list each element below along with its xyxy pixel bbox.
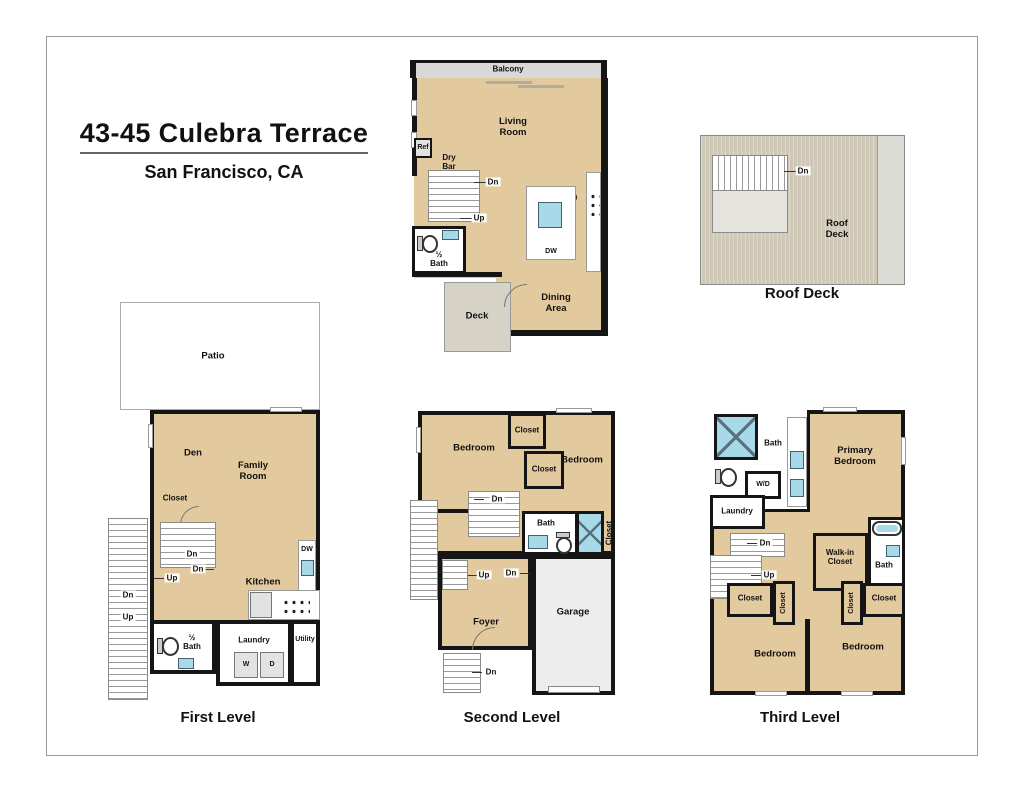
stairs-dn-label: Dn <box>796 166 811 175</box>
room-label-bath: Bath <box>537 518 555 527</box>
page-subtitle: San Francisco, CA <box>56 162 392 183</box>
stairs <box>160 522 216 568</box>
stairs-up-label: Up <box>472 213 487 222</box>
room-utility <box>290 620 320 686</box>
window <box>755 691 787 696</box>
sink <box>301 560 314 576</box>
direction-arrow <box>460 218 472 219</box>
stairs-dn-label: Dn <box>191 564 206 573</box>
stairs-up-label: Up <box>121 612 136 621</box>
window <box>823 407 857 412</box>
stairs <box>712 155 788 191</box>
window <box>841 691 873 696</box>
caption-roof-deck: Roof Deck <box>765 285 839 302</box>
room-label-half-bath: ½ Bath <box>183 633 201 651</box>
room-label-bath: Bath <box>875 560 893 569</box>
wall-right <box>601 78 608 336</box>
room-label-patio: Patio <box>201 352 224 363</box>
roof-side-strip <box>877 136 904 284</box>
appliance-label-dryer: D <box>269 661 274 669</box>
sink <box>790 479 804 497</box>
room-label-living-room: Living Room <box>499 117 527 139</box>
page-title: 43-45 Culebra Terrace <box>80 118 369 154</box>
shower <box>714 414 758 460</box>
sliding-door <box>518 85 564 88</box>
toilet <box>556 537 572 554</box>
exterior-stairs <box>410 500 438 600</box>
stairs-dn-label: Dn <box>484 667 499 676</box>
title-block: 43-45 Culebra Terrace San Francisco, CA <box>56 118 392 183</box>
plan-third-level: Bath W/D Laundry Primary Bedroom Dn Walk… <box>705 405 910 700</box>
appliance-label-dw: DW <box>299 546 315 554</box>
stairs-up-label: Up <box>477 570 492 579</box>
wall-bottom <box>496 330 608 336</box>
room-label-foyer: Foyer <box>473 618 499 629</box>
direction-arrow <box>747 543 757 544</box>
sink <box>178 658 194 669</box>
room-label-bedroom: Bedroom <box>842 643 884 654</box>
appliance-label-ref: Ref <box>417 144 428 152</box>
direction-arrow <box>474 499 484 500</box>
exterior-stairs <box>443 653 481 693</box>
room-label-bedroom: Bedroom <box>754 650 796 661</box>
stairs-dn-label: Dn <box>490 494 505 503</box>
shower <box>576 511 604 555</box>
room-label-roof-deck: Roof Deck <box>826 219 849 241</box>
window <box>270 407 302 412</box>
room-label-family-room: Family Room <box>238 461 268 483</box>
appliance-label-washer: W <box>243 661 250 669</box>
window <box>411 100 417 116</box>
room-label-closet: Closet <box>515 425 539 434</box>
wall-left <box>412 78 417 176</box>
plan-second-level: Bedroom Closet Closet Bedroom Dn Bath Cl… <box>410 405 620 700</box>
room-label-garage: Garage <box>557 608 590 619</box>
room-label-closet: Closet <box>780 592 788 613</box>
sink <box>442 230 459 240</box>
room-label-closet: Closet <box>163 493 187 502</box>
room-label-closet: Closet <box>532 464 556 473</box>
direction-arrow <box>751 575 761 576</box>
bathtub <box>872 521 902 536</box>
room-label-deck: Deck <box>466 312 489 323</box>
room-label-primary-bedroom: Primary Bedroom <box>834 446 876 468</box>
sink <box>790 451 804 469</box>
room-garage <box>532 555 615 695</box>
stairs-up-label: Up <box>165 573 180 582</box>
stairs-dn-label: Dn <box>504 568 519 577</box>
direction-arrow <box>472 672 482 673</box>
room-label-dining-area: Dining Area <box>541 293 571 315</box>
plan-upper-level: Balcony Living Room Ref Dry Bar Dn Up ½ … <box>408 56 613 356</box>
toilet <box>720 468 737 487</box>
room-label-walk-in-closet: Walk-in Closet <box>826 548 854 566</box>
window <box>901 437 906 465</box>
room-label-balcony: Balcony <box>492 64 523 73</box>
appliance <box>250 592 272 618</box>
stairs-dn-label: Dn <box>486 177 501 186</box>
exterior-stairs <box>108 518 148 700</box>
sink <box>886 545 900 557</box>
room-label-wd: W/D <box>756 481 770 489</box>
room-label-bath: Bath <box>764 438 782 447</box>
room-label-den: Den <box>184 449 202 460</box>
room-label-utility: Utility <box>295 636 314 644</box>
sliding-door <box>486 81 532 84</box>
wall-interior <box>805 619 810 695</box>
stove-burners <box>280 596 310 614</box>
stairs-dn-label: Dn <box>121 590 136 599</box>
caption-third-level: Third Level <box>760 709 840 726</box>
stair-landing <box>713 191 787 232</box>
direction-arrow <box>154 578 164 579</box>
direction-arrow <box>784 171 796 172</box>
plan-first-level: Patio Den Family Room Closet Dn Dn Up Ki… <box>108 302 323 700</box>
kitchen-counter <box>586 172 601 272</box>
room-label-closet: Closet <box>604 521 613 545</box>
room-label-dry-bar: Dry Bar <box>442 153 455 171</box>
room-label-closet: Closet <box>738 593 762 602</box>
room-label-closet: Closet <box>872 593 896 602</box>
stairs <box>442 560 468 590</box>
caption-first-level: First Level <box>180 709 255 726</box>
stairs-dn-label: Dn <box>758 538 773 547</box>
room-label-bedroom: Bedroom <box>453 444 495 455</box>
direction-arrow <box>204 569 214 570</box>
window <box>148 424 153 448</box>
room-label-laundry: Laundry <box>721 506 753 515</box>
room-label-laundry: Laundry <box>238 635 270 644</box>
toilet <box>162 637 179 656</box>
stairs-dn-label: Dn <box>185 549 200 558</box>
garage-door <box>548 686 600 693</box>
plan-roof-deck: Dn Roof Deck <box>700 135 905 285</box>
sink <box>538 202 562 228</box>
window <box>556 408 592 413</box>
sink <box>528 535 548 549</box>
window <box>416 427 421 453</box>
stove-burners <box>587 190 600 216</box>
stairs-up-label: Up <box>762 570 777 579</box>
room-label-half-bath: ½ Bath <box>430 250 448 268</box>
direction-arrow <box>520 573 530 574</box>
room-label-closet: Closet <box>848 592 856 613</box>
appliance-label-dw: DW <box>545 248 557 256</box>
caption-second-level: Second Level <box>464 709 561 726</box>
direction-arrow <box>474 182 486 183</box>
room-label-kitchen: Kitchen <box>246 578 281 589</box>
room-label-bedroom: Bedroom <box>561 456 603 467</box>
